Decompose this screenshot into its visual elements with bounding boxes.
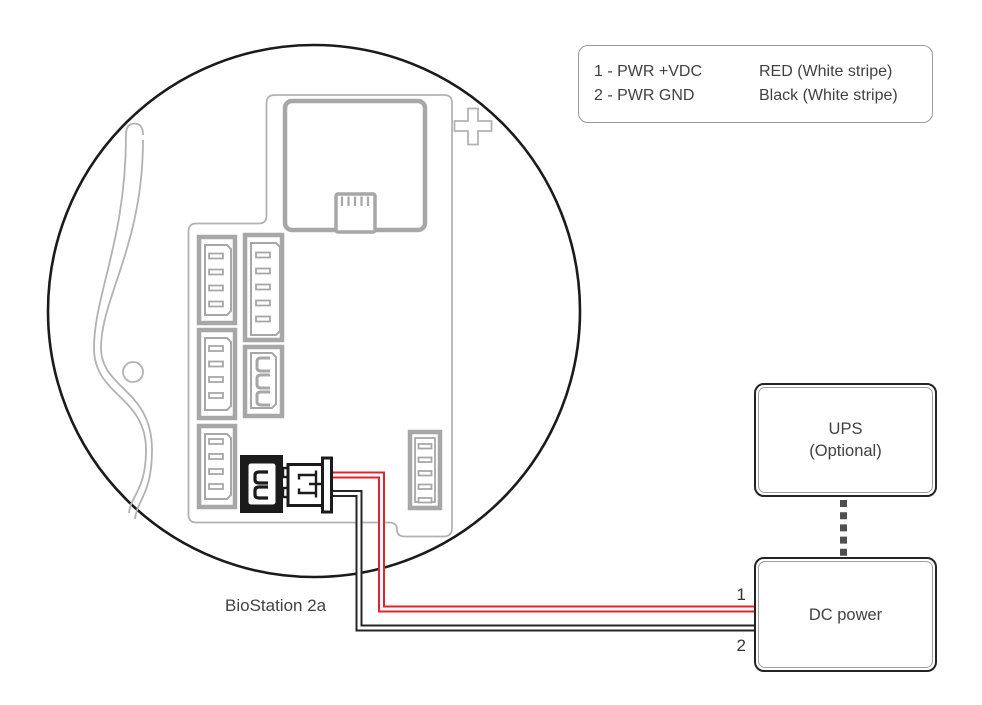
- pcb-connector: [245, 347, 282, 416]
- rj-jack-icon: [336, 194, 375, 232]
- pcb-connector: [199, 237, 235, 323]
- pcb-connector: [199, 426, 235, 507]
- dc-power-box: DC power: [754, 557, 937, 672]
- legend-pin-label: 1 - PWR +VDC: [594, 60, 759, 84]
- pcb-connector: [245, 235, 282, 340]
- legend-pin-label: 2 - PWR GND: [594, 84, 759, 108]
- ups-optional-label: (Optional): [809, 440, 881, 462]
- legend-wire-label: RED (White stripe): [759, 60, 892, 84]
- mounting-hole: [123, 362, 143, 382]
- legend-wire-label: Black (White stripe): [759, 84, 898, 108]
- wire-1-label: 1: [706, 585, 746, 605]
- wiring-diagram: 1 - PWR +VDC RED (White stripe) 2 - PWR …: [0, 0, 982, 705]
- legend-row: 2 - PWR GND Black (White stripe): [594, 84, 932, 108]
- power-plug: [283, 458, 332, 512]
- device-label: BioStation 2a: [225, 596, 326, 616]
- dc-power-label: DC power: [809, 604, 882, 626]
- module-outline: [285, 101, 425, 232]
- ups-box-inner-border: UPS (Optional): [758, 387, 933, 493]
- ups-box: UPS (Optional): [754, 383, 937, 497]
- legend-row: 1 - PWR +VDC RED (White stripe): [594, 60, 932, 84]
- ups-label: UPS: [829, 418, 863, 440]
- dc-power-box-inner-border: DC power: [758, 561, 933, 668]
- wire-2-label: 2: [706, 636, 746, 656]
- power-socket: [240, 455, 283, 513]
- pcb-connector-small: [410, 432, 440, 508]
- wire-legend-box: 1 - PWR +VDC RED (White stripe) 2 - PWR …: [578, 45, 933, 123]
- pcb-connector: [199, 330, 235, 418]
